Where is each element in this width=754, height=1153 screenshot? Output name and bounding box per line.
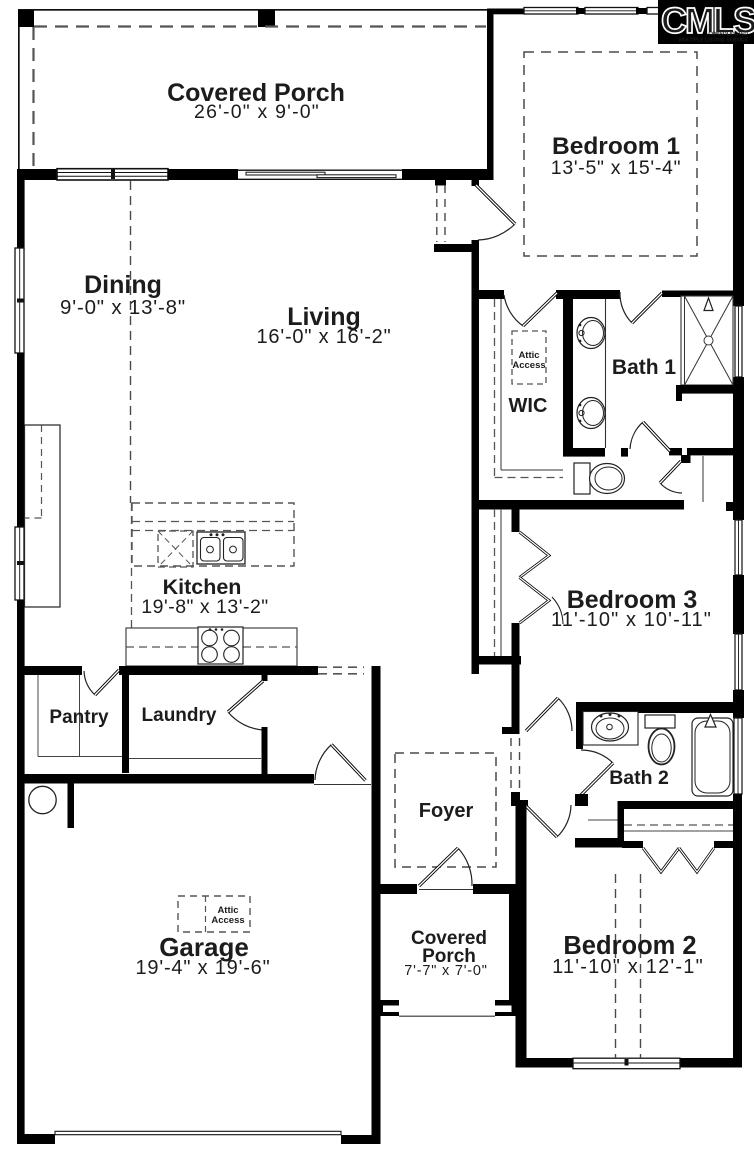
svg-text:Access: Access <box>512 360 545 371</box>
svg-text:Bath 1: Bath 1 <box>612 356 677 379</box>
svg-text:WIC: WIC <box>509 395 548 417</box>
svg-text:16'-0" x 16'-2": 16'-0" x 16'-2" <box>256 326 391 348</box>
svg-text:Foyer: Foyer <box>419 800 474 822</box>
svg-text:13'-5" x 15'-4": 13'-5" x 15'-4" <box>551 157 681 179</box>
svg-text:9'-0" x 13'-8": 9'-0" x 13'-8" <box>60 296 186 319</box>
svg-text:Dining: Dining <box>84 271 162 299</box>
svg-text:26'-0" x 9'-0": 26'-0" x 9'-0" <box>194 101 320 123</box>
svg-text:Bath 2: Bath 2 <box>609 767 669 789</box>
svg-text:Access: Access <box>211 915 244 926</box>
svg-text:Pantry: Pantry <box>49 707 109 728</box>
svg-text:MULTIPLE LISTING SERVICE: MULTIPLE LISTING SERVICE <box>679 38 749 44</box>
svg-text:7'-7" x 7'-0": 7'-7" x 7'-0" <box>404 963 487 979</box>
svg-text:Bedroom 1: Bedroom 1 <box>552 133 680 160</box>
svg-text:Laundry: Laundry <box>142 705 217 726</box>
svg-text:19'-8" x 13'-2": 19'-8" x 13'-2" <box>141 596 268 618</box>
svg-text:11'-10" x 10'-11": 11'-10" x 10'-11" <box>551 609 712 631</box>
svg-text:19'-4" x 19'-6": 19'-4" x 19'-6" <box>135 957 270 979</box>
svg-text:11'-10" x 12'-1": 11'-10" x 12'-1" <box>552 956 704 978</box>
